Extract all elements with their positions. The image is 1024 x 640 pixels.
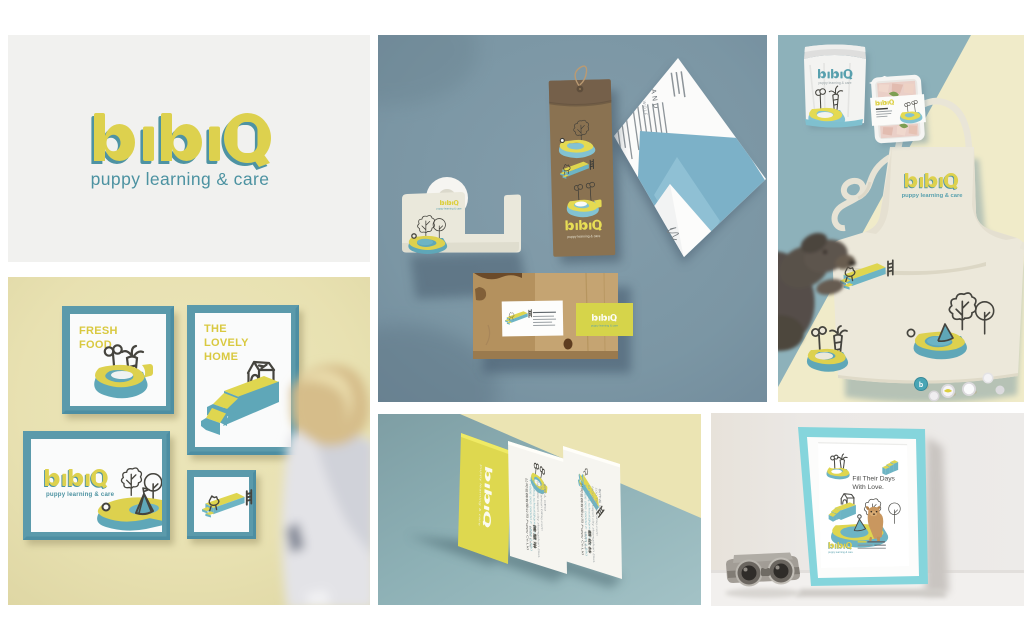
- svg-text:HOME: HOME: [204, 351, 238, 363]
- svg-text:b: b: [919, 382, 923, 389]
- svg-text:製作長 CD: 製作長 CD: [598, 488, 602, 513]
- svg-text:puppy learning & care: puppy learning & care: [902, 193, 964, 199]
- svg-text:puppy learning & care: puppy learning & care: [436, 207, 462, 211]
- svg-text:puppy learning & care: puppy learning & care: [91, 169, 270, 189]
- svg-text:puppy learning & care: puppy learning & care: [46, 491, 115, 498]
- svg-text:With Love.: With Love.: [852, 484, 884, 491]
- svg-text:puppy learning & care: puppy learning & care: [591, 324, 619, 328]
- svg-text:puppy learning & care: puppy learning & care: [828, 550, 853, 554]
- svg-text:Fill Their Days: Fill Their Days: [852, 475, 895, 482]
- svg-text:創辦人 CEO: 創辦人 CEO: [543, 483, 547, 512]
- svg-text:puppy learning & care: puppy learning & care: [819, 81, 852, 85]
- svg-text:FRESH: FRESH: [79, 325, 118, 337]
- svg-text:THE: THE: [204, 323, 227, 335]
- svg-text:Teri Lee: Teri Lee: [584, 530, 587, 551]
- svg-text:LOVELY: LOVELY: [204, 337, 249, 349]
- svg-text:Bobi Line: Bobi Line: [529, 525, 533, 549]
